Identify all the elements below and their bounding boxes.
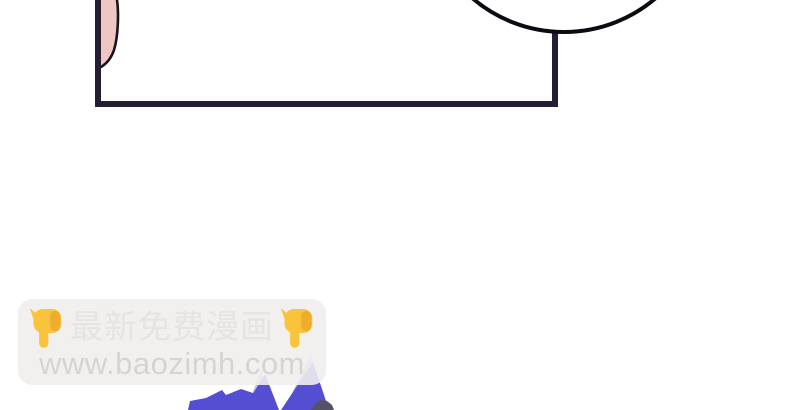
hand-fist-shade: [301, 310, 311, 330]
watermark-url: www.baozimh.com: [18, 347, 326, 383]
pointing-down-hand-icon: [28, 305, 65, 350]
watermark-title-row: 最新免费漫画: [18, 303, 326, 351]
comic-page: 最新免费漫画 www.baozimh.com: [0, 0, 800, 410]
hand-fist-shade: [50, 310, 60, 330]
watermark-box: 最新免费漫画 www.baozimh.com: [18, 299, 326, 385]
pointing-down-hand-icon: [279, 305, 316, 350]
hand-finger-down: [290, 326, 299, 347]
hand-finger-down: [39, 326, 48, 347]
watermark-title: 最新免费漫画: [70, 303, 274, 351]
